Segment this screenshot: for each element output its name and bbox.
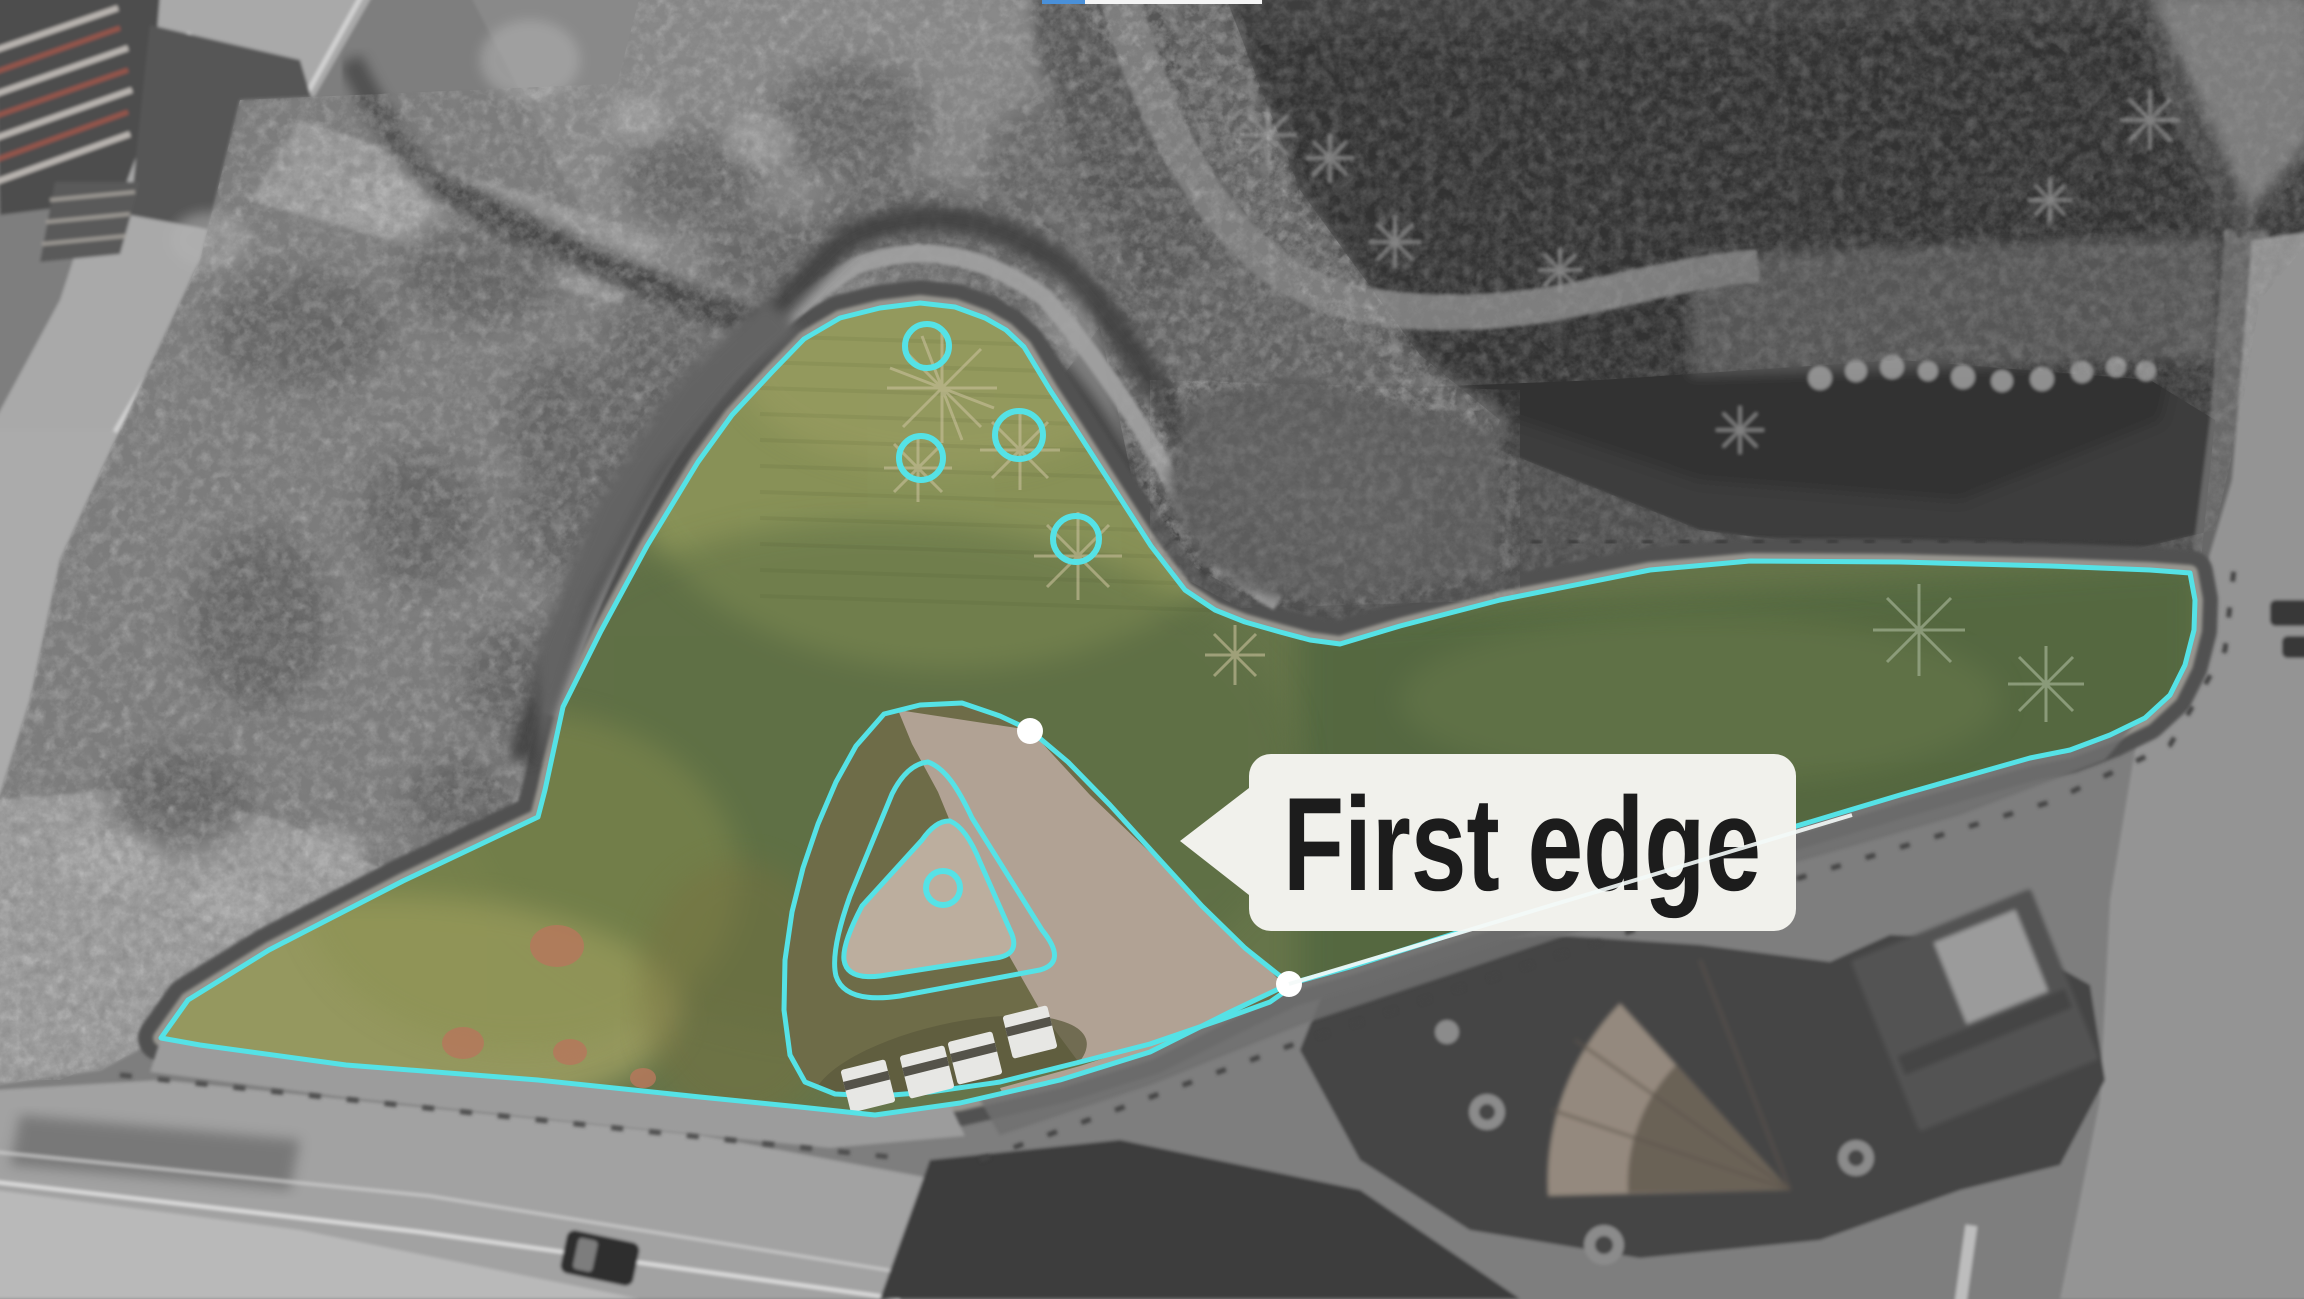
svg-text:First edge: First edge (1283, 771, 1761, 919)
